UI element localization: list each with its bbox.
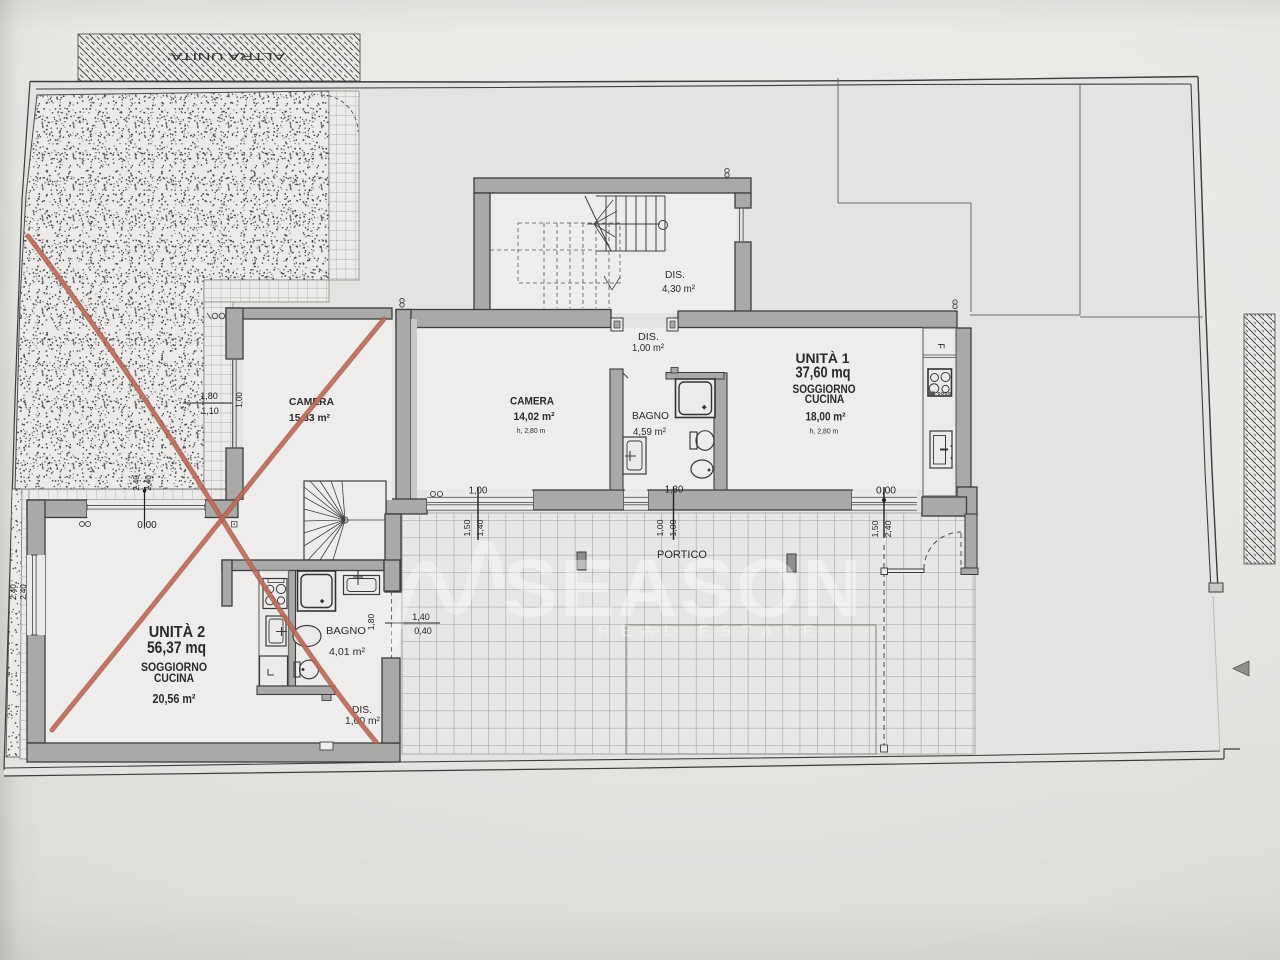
svg-text:2,40: 2,40 bbox=[132, 475, 141, 491]
svg-text:2,40: 2,40 bbox=[144, 475, 153, 491]
svg-text:14,02 m²: 14,02 m² bbox=[514, 411, 555, 423]
svg-text:20,56 m²: 20,56 m² bbox=[153, 692, 196, 706]
svg-text:1,00: 1,00 bbox=[668, 519, 678, 536]
svg-text:4,30 m²: 4,30 m² bbox=[662, 283, 695, 295]
svg-text:0,00: 0,00 bbox=[876, 485, 896, 497]
svg-text:2,40: 2,40 bbox=[883, 520, 893, 537]
svg-text:h, 2,80 m: h, 2,80 m bbox=[810, 427, 839, 436]
svg-text:BAGNO: BAGNO bbox=[632, 410, 669, 422]
svg-text:BAGNO: BAGNO bbox=[326, 625, 366, 637]
svg-text:15,33 m²: 15,33 m² bbox=[289, 412, 330, 424]
svg-text:DIS.: DIS. bbox=[638, 332, 659, 343]
svg-text:1,40: 1,40 bbox=[475, 519, 485, 536]
svg-text:1,40: 1,40 bbox=[412, 612, 430, 622]
svg-text:1,50: 1,50 bbox=[462, 519, 472, 536]
svg-text:F: F bbox=[936, 343, 946, 349]
svg-text:1,80: 1,80 bbox=[366, 613, 376, 630]
svg-text:0,40: 0,40 bbox=[414, 626, 432, 636]
svg-text:0,00: 0,00 bbox=[137, 520, 157, 531]
svg-text:4,59 m²: 4,59 m² bbox=[633, 426, 666, 438]
svg-text:DIS.: DIS. bbox=[665, 269, 685, 281]
svg-text:CAMERA: CAMERA bbox=[510, 396, 554, 408]
svg-text:4,01 m²: 4,01 m² bbox=[329, 646, 365, 658]
svg-text:1,00: 1,00 bbox=[655, 519, 665, 536]
svg-text:37,60 mq: 37,60 mq bbox=[796, 365, 851, 382]
svg-text:REAL ESTATE: REAL ESTATE bbox=[598, 623, 825, 640]
svg-text:1,10: 1,10 bbox=[201, 406, 219, 416]
svg-text:1,00 m²: 1,00 m² bbox=[632, 343, 665, 354]
svg-text:h, 2,80 m: h, 2,80 m bbox=[517, 426, 546, 435]
svg-text:18,00 m²: 18,00 m² bbox=[806, 412, 846, 424]
svg-text:56,37 mq: 56,37 mq bbox=[147, 639, 206, 657]
svg-text:1,50: 1,50 bbox=[870, 520, 880, 537]
svg-text:2,40: 2,40 bbox=[9, 584, 18, 600]
svg-text:1,00: 1,00 bbox=[235, 392, 244, 408]
svg-text:CUCINA: CUCINA bbox=[805, 392, 845, 406]
svg-text:2,40: 2,40 bbox=[19, 584, 28, 600]
svg-text:SEASON: SEASON bbox=[503, 543, 864, 634]
svg-text:1,80: 1,80 bbox=[200, 391, 218, 401]
svg-text:ALTRA UNITA': ALTRA UNITA' bbox=[167, 50, 285, 62]
svg-text:CUCINA: CUCINA bbox=[154, 671, 194, 685]
